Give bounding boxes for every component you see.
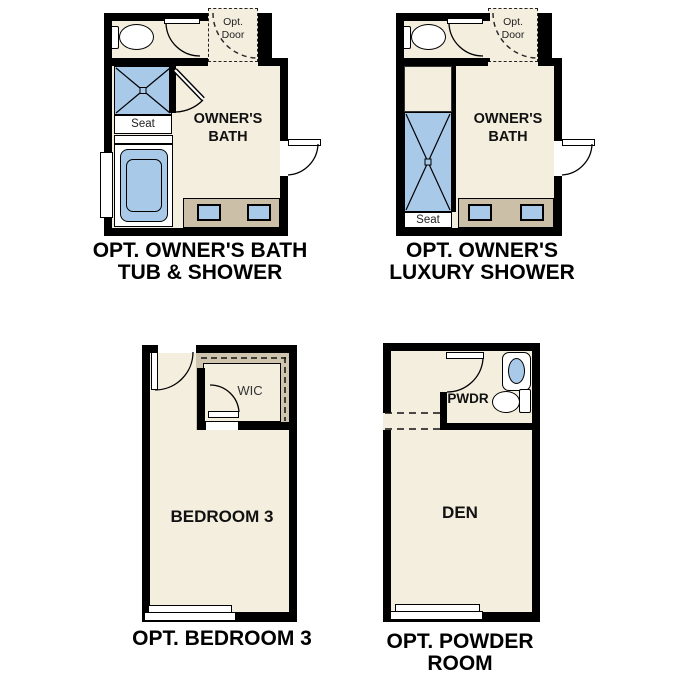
caption-line1: OPT. POWDER [370, 630, 550, 654]
tub-window [100, 152, 113, 218]
wic-doorway [206, 422, 238, 430]
floorplan-sheet: OWNER'S BATH Seat Opt. Door OPT. OWNER'S… [0, 0, 687, 687]
caption-line2: LUXURY SHOWER [372, 261, 592, 285]
bath-entry-doorway [280, 141, 288, 176]
bath-entry-door-leaf [288, 139, 321, 146]
toilet-room-door-leaf [164, 18, 200, 24]
shower-wall-stub [169, 66, 176, 113]
opt-door-label-1: Opt. [488, 17, 538, 28]
toilet-room-door-leaf [447, 18, 483, 24]
wall [383, 343, 540, 351]
caption-line2: TUB & SHOWER [90, 261, 310, 285]
shower-entry [404, 66, 452, 112]
wall [396, 228, 562, 236]
bath-entry-arc [288, 144, 318, 175]
toilet-room-doorway [200, 21, 208, 58]
toilet-tank [519, 389, 531, 413]
bath-entry-door-leaf [562, 139, 595, 146]
opt-door-opening [208, 62, 258, 66]
caption-line1: OPT. OWNER'S BATH [90, 239, 310, 263]
tub-ledge-strip [114, 135, 173, 144]
seat-label: Seat [404, 214, 452, 226]
opt-door-label-1: Opt. [208, 17, 258, 28]
wall [396, 13, 404, 236]
wall [258, 13, 272, 66]
pwdr-bottom-wall [440, 423, 532, 430]
bedroom-window-sill [144, 612, 236, 621]
wall [538, 13, 552, 66]
wall [104, 58, 208, 66]
caption-line2: ROOM [370, 652, 550, 676]
room-label-den: DEN [410, 504, 510, 522]
sink-basin [508, 358, 525, 384]
wic-label: WIC [225, 384, 275, 398]
pwdr-label: PWDR [444, 392, 492, 406]
shower-pan [114, 66, 172, 115]
wall [142, 345, 150, 622]
den-cased-opening [383, 413, 391, 430]
wall [532, 343, 540, 614]
seat-label: Seat [114, 118, 172, 130]
vanity-sink-right [247, 204, 271, 221]
room-label-bedroom3: BEDROOM 3 [152, 508, 292, 526]
wall [383, 343, 391, 614]
caption-line1: OPT. OWNER'S [372, 239, 592, 263]
opt-door-label-2: Door [208, 30, 258, 41]
vanity-sink-left [197, 204, 221, 221]
caption: OPT. BEDROOM 3 [122, 627, 322, 651]
vanity-sink-right [520, 204, 544, 221]
opt-door-opening [488, 62, 538, 66]
wall [396, 58, 490, 66]
den-window-sill [390, 611, 483, 620]
bathtub-inner-line [126, 159, 162, 212]
wall [104, 228, 288, 236]
wall [289, 345, 297, 622]
toilet-bowl [492, 391, 520, 413]
room-label-owners: OWNER'S [458, 112, 558, 127]
toilet-bowl [119, 24, 154, 50]
bedroom-entry-door-leaf [151, 352, 158, 390]
toilet-bowl [411, 24, 446, 50]
room-label-bath: BATH [178, 130, 278, 145]
room-label-owners: OWNER'S [178, 112, 278, 127]
shower-divider-wall [452, 66, 456, 212]
wic-side-wall [197, 368, 205, 422]
room-label-bath: BATH [458, 130, 558, 145]
wic-door-leaf [208, 411, 239, 418]
opt-door-label-2: Door [488, 30, 538, 41]
pwdr-door-leaf [446, 352, 484, 359]
vanity-sink-left [468, 204, 492, 221]
shower-pan [404, 112, 452, 212]
bedroom-entry-doorway [158, 345, 196, 353]
bath-entry-doorway [554, 141, 562, 176]
bath-entry-arc [562, 144, 592, 175]
